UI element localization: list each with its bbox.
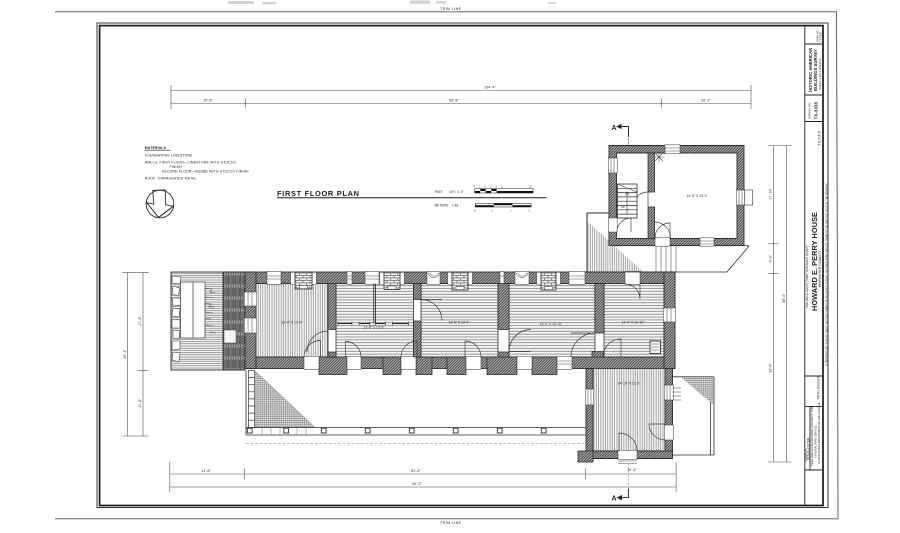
svg-text:104’-4”: 104’-4” [484,86,496,90]
svg-text:14’-10” X 12’-2”: 14’-10” X 12’-2” [618,382,641,386]
svg-text:13’-6”: 13’-6” [201,469,211,473]
svg-text:6’-2”: 6’-2” [769,254,773,262]
svg-text:TERLINGUA: TERLINGUA [817,375,821,400]
svg-text:29’-4”: 29’-4” [123,348,127,358]
svg-text:TRIM LINE: TRIM LINE [440,521,462,525]
svg-text:11’-8”: 11’-8” [138,398,142,408]
svg-text:FIRST FLOOR PLAN: FIRST FLOOR PLAN [277,189,360,198]
svg-text:TX-3335: TX-3335 [814,101,819,119]
svg-text:A: A [612,496,617,503]
svg-text:61’-4”: 61’-4” [411,469,421,473]
svg-text:TX-3335: TX-3335 [819,31,823,42]
svg-text:FEET: FEET [435,190,443,194]
svg-text:ROOF: CORRUGATED METAL: ROOF: CORRUGATED METAL [145,176,197,180]
svg-text:BREWSTER COUNTY: BREWSTER COUNTY [818,250,822,287]
svg-text:34’-6”: 34’-6” [769,362,773,372]
svg-text:13’-6” X 13’-8”: 13’-6” X 13’-8” [282,321,303,325]
svg-text:METERS: METERS [435,203,448,207]
svg-text:17’-8”: 17’-8” [138,315,142,325]
svg-text:SECOND FLOOR—ADOBE WITH STU: SECOND FLOOR—ADOBE WITH STUCCO FINISH [162,169,249,173]
svg-text:14’-9” X 14’-3”: 14’-9” X 14’-3” [687,194,708,198]
svg-text:TERLINGUA GHOST TOWN, TERLINGU: TERLINGUA GHOST TOWN, TERLINGUA VICINITY [805,245,809,308]
svg-text:15’-8”: 15’-8” [203,99,213,103]
svg-text:SURVEY NO.: SURVEY NO. [808,102,812,119]
svg-text:13’-4” X 13’-10”: 13’-4” X 13’-10” [540,322,563,326]
svg-text:MATERIALS: MATERIALS [145,146,167,150]
svg-text:TEXAS: TEXAS [817,130,822,146]
svg-text:65’-8”: 65’-8” [449,99,459,103]
svg-text:TRIM LINE: TRIM LINE [440,7,462,11]
svg-text:1/4”= 1’-0”: 1/4”= 1’-0” [449,190,464,194]
svg-text:17’-10”: 17’-10” [769,187,773,199]
svg-text:A: A [612,125,617,132]
svg-text:16’-4”: 16’-4” [627,468,637,472]
svg-text:FOUNDATION: LIMESTONE: FOUNDATION: LIMESTONE [145,154,193,158]
svg-text:1:48: 1:48 [452,203,458,207]
svg-text:BUILDINGS SURVEY: BUILDINGS SURVEY [813,49,818,91]
svg-text:UP: UP [621,205,625,209]
svg-text:SHEET 1 OF 5 SHEETS: SHEET 1 OF 5 SHEETS [818,58,822,90]
svg-text:UNITED STATES DEPARTMENT OF TH: UNITED STATES DEPARTMENT OF THE INTERIOR [817,402,821,464]
svg-text:58’-6”: 58’-6” [782,292,786,302]
svg-text:13’-5” X 13’-4”: 13’-5” X 13’-4” [449,321,470,325]
svg-text:FINISH: FINISH [170,165,183,169]
svg-text:20’-2”: 20’-2” [701,99,711,103]
svg-text:13’-5” X 13’-6”: 13’-5” X 13’-6” [364,326,385,330]
svg-text:WALLS: FIRST FLOOR—LIMESTONE: WALLS: FIRST FLOOR—LIMESTONE WITH STUCCO [145,161,237,165]
svg-text:IF REPRODUCED, PLEASE CREDIT H: IF REPRODUCED, PLEASE CREDIT HISTORIC AM… [826,183,829,366]
svg-text:13’-4” X 10’-10”: 13’-4” X 10’-10” [622,321,645,325]
svg-text:90’-2”: 90’-2” [412,482,422,486]
